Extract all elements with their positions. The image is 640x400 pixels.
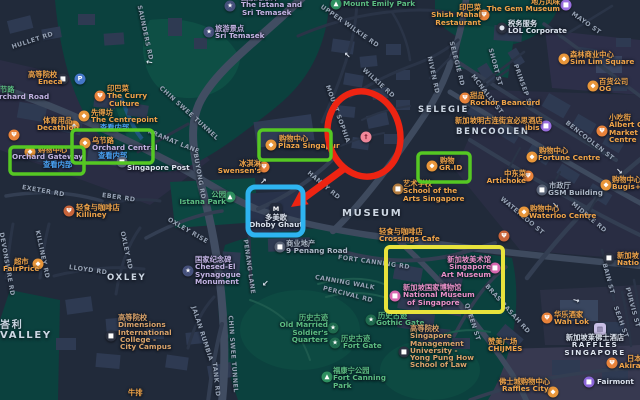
poi-line: Fairmont (597, 378, 634, 385)
chesed-el-synagogue-icon[interactable]: ★ (183, 266, 194, 277)
poi-line: Sim Lim Square (570, 58, 634, 65)
waterloo-centre-label[interactable]: 购物中心Waterloo Centre (530, 205, 596, 220)
national-museum-icon[interactable]: ■ (390, 291, 401, 302)
one-way-arrow: ↖ (344, 51, 351, 60)
poi-line: Park (333, 382, 386, 389)
centrepoint-icon[interactable]: ◆ (79, 111, 90, 122)
fairprice-label[interactable]: 超市FairPrice (14, 258, 39, 273)
mount-emily-park-label[interactable]: Mount Emily Park (343, 0, 415, 7)
poi-line: 9 Penang Road (286, 247, 348, 254)
national-library-label[interactable]: 新加坡Natio (617, 252, 639, 267)
swensens-label[interactable]: 冰淇淋Swensen's (218, 160, 261, 175)
poi-line: GR.ID (439, 164, 462, 171)
poi-line: Bugis+ (612, 183, 640, 190)
road-label: PENANG LANE (242, 239, 257, 295)
road-label: HULLET RD (11, 31, 54, 51)
curry-culture-icon[interactable]: Ψ (95, 91, 106, 102)
plaza-singapura-icon[interactable]: ◆ (266, 140, 277, 151)
fort-gate-icon[interactable]: ★ (330, 338, 341, 349)
poi-line: Fortune Centre (538, 154, 600, 161)
road-label: EBER RD (102, 192, 136, 204)
fort-canning-park-label[interactable]: 福康宁公园Fort CanningPark (333, 367, 386, 389)
ibis-hotel-label[interactable]: 新加坡明古连街宜必思酒店ibis (455, 117, 543, 132)
lol-corporate-icon[interactable]: ● (497, 23, 508, 34)
fairmont-label[interactable]: Fairmont (597, 378, 634, 385)
poi-line: Wah Lok (554, 318, 589, 325)
raffles-hotel-label[interactable]: 新加坡莱佛士酒店RAFFLESSINGAPORE (564, 334, 625, 356)
bugis-plus-label[interactable]: 购物中心Bugis+ (612, 176, 640, 191)
poi-line: Natio (617, 259, 639, 266)
poi-line: 查看内部 (100, 124, 158, 131)
akira-back-label[interactable]: 日本Akira Ba (619, 355, 640, 370)
district-label: OXLEY (107, 273, 146, 283)
rochor-beancurd-label[interactable]: 甜品Rochor Beancurd (470, 92, 540, 107)
district-label: SELEGIE (418, 105, 469, 115)
poi-line: Mount Emily Park (343, 0, 415, 7)
road-label: TANK RD (211, 362, 222, 397)
poi-line: Istana Park (179, 198, 226, 205)
poi-line: OG (599, 85, 628, 92)
artichoke-label[interactable]: 中东菜Artichoke (487, 170, 526, 185)
poi-line: Swensen's (218, 167, 261, 174)
poi-line: Arts Singapore (403, 195, 465, 202)
smu-law-icon[interactable]: ■ (399, 347, 410, 358)
district-label: 峇利 (0, 316, 23, 331)
poi-line: Monument (195, 278, 241, 285)
old-married-soldiers-quarters-icon[interactable]: ★ (328, 323, 339, 334)
steak-house-label[interactable]: 牛排 (128, 389, 143, 396)
one-way-arrow: ↗ (260, 177, 267, 186)
fort-canning-park-icon[interactable]: ▲ (322, 372, 333, 383)
poi-line: Artichoke (487, 177, 526, 184)
nine-penang-road-icon[interactable]: ■ (275, 242, 286, 253)
smu-law-label[interactable]: 高等院校SingaporeManagementUniversity -Yong … (410, 325, 474, 369)
poi-line: Raffles City (502, 385, 550, 392)
wah-lok-icon[interactable]: Ψ (542, 313, 553, 324)
left-edge-eatery-icon[interactable]: Ψ (9, 130, 20, 141)
sim-lim-square-icon[interactable]: ◆ (559, 54, 570, 65)
dhoby-ghaut-station-label[interactable]: 多美歌Dhoby Ghaut (249, 214, 303, 229)
poi-line: of Singapore (407, 299, 475, 306)
national-museum-label[interactable]: 新加坡国家博物馆National Museumof Singapore (403, 284, 475, 306)
road-label: OXLEY RISE (166, 216, 209, 245)
fairmont-icon[interactable]: ■ (584, 377, 595, 388)
poi-line: LOL Corporate (508, 27, 567, 34)
poi-line: 牛排 (128, 389, 143, 396)
road-label: FORT CANNING RD (338, 254, 411, 271)
road-label: CHIN SWEE TUNNEL (158, 85, 220, 142)
poi-line: Fort Gate (343, 342, 382, 349)
grid-mall-icon[interactable]: ◆ (427, 161, 438, 172)
singapore-post-label[interactable]: Singapore Post (127, 164, 190, 171)
poi-line: GSM Building (548, 189, 603, 196)
og-department-store-icon[interactable]: ◆ (588, 81, 599, 92)
poi-line: School of Law (410, 361, 474, 368)
poi-line: Waterloo Centre (529, 212, 596, 219)
gsm-building-label[interactable]: 市政厅GSM Building (549, 182, 603, 197)
poi-line: Art Museum (441, 271, 491, 278)
gem-museum-label[interactable]: 地方风味The Gem Museum (487, 0, 560, 13)
poi-line: Killiney (76, 211, 120, 218)
rochor-beancurd-icon[interactable]: Ψ (460, 93, 471, 104)
road-label: WILKIE RD (361, 67, 396, 100)
poi-line: Restaurant (431, 19, 481, 26)
road-label: BRAS BASAH RD (483, 283, 531, 335)
poi-line: rchard Road (0, 93, 49, 100)
dimensions-college-icon[interactable]: ■ (106, 331, 117, 342)
map-labels-layer: HULLET RDSAUNDERS RDUPPER WILKIE RDWILKI… (0, 0, 640, 400)
church-poi-icon[interactable]: † (361, 132, 372, 143)
poi-line: Crossings Cafe (379, 235, 440, 242)
one-way-arrow: ← (145, 57, 154, 67)
poi-line: Sri Temasek (242, 9, 302, 16)
centrepoint-label[interactable]: 先得坊The Centrepoint查看内部 (91, 109, 158, 131)
poi-line: 查看内部 (43, 161, 83, 168)
singapore-art-museum-label[interactable]: 新加坡美术馆SingaporeArt Museum (441, 256, 491, 278)
district-label: MUSEUM (342, 208, 402, 219)
district-label: VALLEY (0, 330, 52, 341)
istana-sri-temasek-icon[interactable]: ★ (225, 1, 236, 12)
akira-back-icon[interactable]: Ψ (607, 358, 618, 369)
gsm-building-icon[interactable]: ■ (537, 185, 548, 196)
albert-centre-label[interactable]: 小吃街Albert CeMarket &Centre (609, 114, 640, 143)
old-married-soldiers-quarters-label[interactable]: 历史古迹Old MarriedSoldier'sQuarters (279, 314, 328, 343)
fortune-centre-label[interactable]: 购物中心Fortune Centre (539, 147, 600, 162)
raffles-city-label[interactable]: 佛士城购物中心Raffles City (499, 378, 550, 393)
mount-emily-park-icon[interactable]: ▲ (331, 0, 342, 10)
road-label: SHORT ST (487, 48, 504, 87)
fortune-centre-icon[interactable]: ◆ (527, 152, 538, 163)
poi-line: Decathlon (37, 124, 79, 131)
poi-line: Akira Ba (619, 362, 640, 369)
poi-line: Culture (109, 100, 147, 107)
poi-line: CHIJMES (488, 345, 522, 352)
wah-lok-label[interactable]: 华乐酒家Wah Lok (554, 311, 589, 326)
eneca-college-label[interactable]: 高等院校Eneca (28, 71, 62, 86)
road-label: MAYO ST (570, 11, 602, 36)
bugis-plus-icon[interactable]: ◆ (601, 180, 612, 191)
poi-line: Plaza Singapur (278, 142, 340, 149)
poi-line: 查看内部 (98, 152, 158, 159)
road-label: HANDY RD (306, 170, 342, 201)
poi-line: Eneca (38, 78, 62, 85)
istana-park-label[interactable]: 公园Istana Park (179, 191, 226, 206)
albert-centre-icon[interactable]: Ψ (597, 126, 608, 137)
road-label: LLOYD RD (69, 264, 108, 276)
og-department-store-label[interactable]: 百货公司OG (599, 78, 628, 93)
shish-mahal-label[interactable]: 印巴菜Shish MahalRestaurant (431, 4, 481, 26)
road-label: PURVIS ST (624, 287, 640, 329)
orchard-central-label[interactable]: 乌节路Orchard Central查看内部 (92, 137, 158, 159)
poi-line: Quarters (279, 336, 328, 343)
poi-line: City Campus (120, 343, 172, 350)
one-way-arrow: ↙ (262, 279, 269, 288)
istana-sri-temasek-label[interactable]: 国家纪念碑The Istana andSri Temasek (241, 0, 302, 16)
road-label: NIVEN RD (426, 56, 441, 95)
chesed-el-synagogue-label[interactable]: 国家纪念碑Chesed-ElSynagogueMonument (195, 256, 241, 285)
poi-line: Dhoby Ghaut (249, 221, 303, 228)
lol-corporate-label[interactable]: 税务服务LOL Corporate (508, 20, 567, 35)
poi-line: Centre (609, 136, 640, 143)
road-label: SELEGIE RD (448, 41, 466, 87)
nine-penang-road-label[interactable]: 商业地产9 Penang Road (286, 240, 348, 255)
road-label: BAIN ST (601, 263, 616, 295)
sri-temasek-label[interactable]: 旅游景点Sri Temasek (215, 25, 265, 40)
orchard-road-label-label[interactable]: 节路rchard Road (0, 86, 49, 101)
waterloo-centre-icon[interactable]: ◆ (519, 207, 530, 218)
map-screenshot: HULLET RDSAUNDERS RDUPPER WILKIE RDWILKI… (0, 0, 640, 400)
poi-line: The Gem Museum (487, 5, 560, 12)
dimensions-college-label[interactable]: 高等院校DimensionsInternationalCollege -City… (118, 314, 172, 350)
road-label: CHIN SWEE TUNNEL (227, 315, 239, 393)
gem-museum-icon[interactable]: ■ (561, 0, 572, 11)
gothic-gate-icon[interactable]: ★ (366, 315, 377, 326)
parking-icon[interactable]: P (75, 74, 86, 85)
national-library-icon[interactable]: ■ (604, 253, 615, 264)
curry-culture-label[interactable]: 印巴菜The CurryCulture (107, 85, 147, 107)
poi-line: SINGAPORE (564, 349, 625, 356)
sri-temasek-icon[interactable]: ★ (204, 27, 215, 38)
poi-line: FairPrice (3, 265, 39, 272)
road-label: EXETER RD (21, 184, 65, 198)
road-label: SAUNDERS RD (136, 5, 154, 61)
school-of-the-arts-label[interactable]: 艺术学校School of theArts Singapore (403, 180, 465, 202)
plaza-singapura-label[interactable]: 购物中心Plaza Singapur (279, 135, 340, 150)
killiney-icon[interactable]: Ψ (64, 206, 75, 217)
one-way-arrow: → (572, 295, 581, 306)
grid-mall-label[interactable]: 购物GR.ID (440, 157, 462, 172)
sim-lim-square-label[interactable]: 森林商业中心Sim Lim Square (570, 51, 634, 66)
road-label: UPPER WILKIE RD (319, 4, 380, 50)
poi-line: Singapore Post (127, 164, 190, 171)
poi-line: Sri Temasek (215, 32, 265, 39)
school-of-the-arts-icon[interactable]: ■ (393, 184, 404, 195)
crossings-cafe-label[interactable]: 轻食与咖啡店Crossings Cafe (379, 228, 440, 243)
poi-line: ibis (525, 124, 543, 131)
chijmes-label[interactable]: 赞美广场CHIJMES (488, 338, 522, 353)
road-label: OXLEY RD (119, 231, 134, 270)
decathlon-label[interactable]: 体育用品Decathlon (43, 117, 79, 132)
fort-gate-label[interactable]: 历史古迹Fort Gate (341, 335, 382, 350)
orchard-gateway-label[interactable]: 购物中心Orchard Gateway查看内部 (12, 146, 83, 168)
poi-line: Rochor Beancurd (470, 99, 540, 106)
crossings-cafe-icon[interactable]: Ψ (499, 231, 510, 242)
singapore-post-icon[interactable]: ■ (117, 157, 128, 168)
road-label: JALAN RUMBIA (190, 305, 214, 362)
orchard-central-icon[interactable]: ◆ (80, 138, 91, 149)
killiney-label[interactable]: 轻食与咖啡店Killiney (76, 204, 120, 219)
